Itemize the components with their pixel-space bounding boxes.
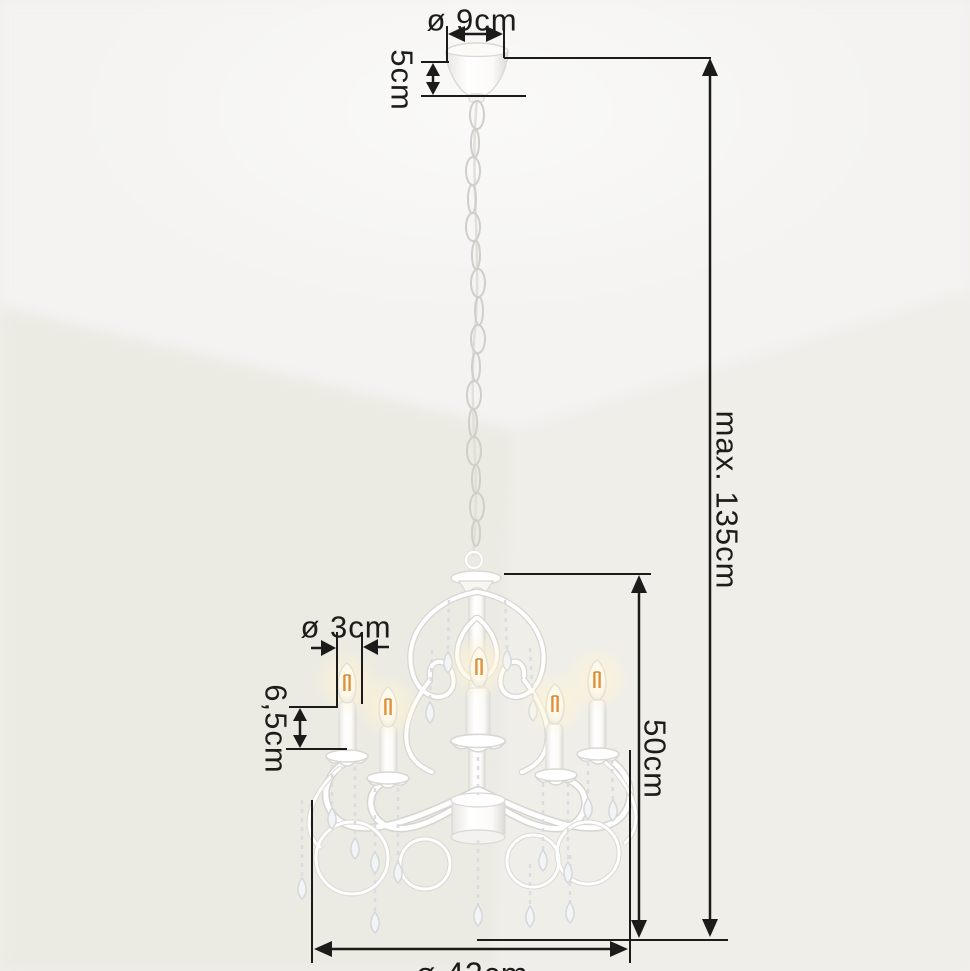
dimension-overlay: [0, 0, 970, 971]
label-fixture-height: 50cm: [640, 719, 671, 799]
label-fixture-diameter: ø 42cm: [416, 958, 529, 971]
product-photo: ø 9cm 5cm max. 135cm 50cm ø 3cm 6,5cm ø …: [0, 0, 970, 971]
dim-fixture-diameter: [312, 750, 630, 963]
label-canopy-diameter: ø 9cm: [426, 5, 517, 36]
dim-canopy-height: [421, 62, 526, 96]
dim-candle-height: [286, 707, 347, 749]
label-candle-diameter: ø 3cm: [300, 612, 391, 643]
dim-fixture-height: [504, 574, 651, 938]
label-max-hanging-height: max. 135cm: [712, 411, 743, 590]
label-canopy-height: 5cm: [387, 49, 418, 111]
label-candle-height: 6,5cm: [261, 684, 292, 773]
